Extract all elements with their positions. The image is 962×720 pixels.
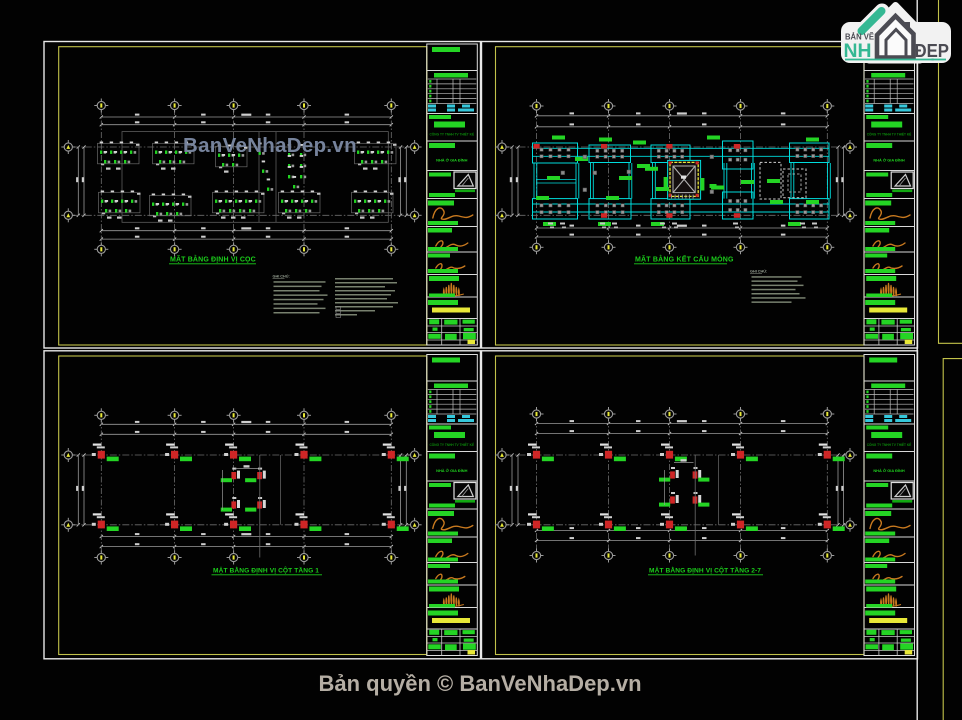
svg-text:ĐẸP: ĐẸP	[915, 40, 950, 61]
svg-text:MẶT BẰNG ĐỊNH VỊ CỌC: MẶT BẰNG ĐỊNH VỊ CỌC	[170, 255, 256, 264]
svg-text:NHÀ Ở GIA ĐÌNH: NHÀ Ở GIA ĐÌNH	[873, 158, 904, 163]
svg-text:CÔNG TY TNHH TV THIẾT KẾ: CÔNG TY TNHH TV THIẾT KẾ	[867, 132, 912, 137]
svg-text:NHÀ Ở GIA ĐÌNH: NHÀ Ở GIA ĐÌNH	[873, 468, 904, 473]
svg-text:GHI CHÚ:: GHI CHÚ:	[273, 274, 290, 279]
svg-text:BanVeNhaDep.vn: BanVeNhaDep.vn	[183, 134, 357, 157]
svg-text:GHI CHÚ:: GHI CHÚ:	[750, 269, 767, 274]
svg-text:CÔNG TY TNHH TV THIẾT KẾ: CÔNG TY TNHH TV THIẾT KẾ	[430, 132, 475, 137]
svg-text:NHÀ Ở GIA ĐÌNH: NHÀ Ở GIA ĐÌNH	[436, 158, 467, 163]
svg-text:CÔNG TY TNHH TV THIẾT KẾ: CÔNG TY TNHH TV THIẾT KẾ	[867, 442, 912, 447]
svg-text:CÔNG TY TNHH TV THIẾT KẾ: CÔNG TY TNHH TV THIẾT KẾ	[430, 442, 475, 447]
svg-text:Bản quyền © BanVeNhaDep.vn: Bản quyền © BanVeNhaDep.vn	[318, 671, 641, 696]
svg-text:NHÀ Ở GIA ĐÌNH: NHÀ Ở GIA ĐÌNH	[436, 468, 467, 473]
